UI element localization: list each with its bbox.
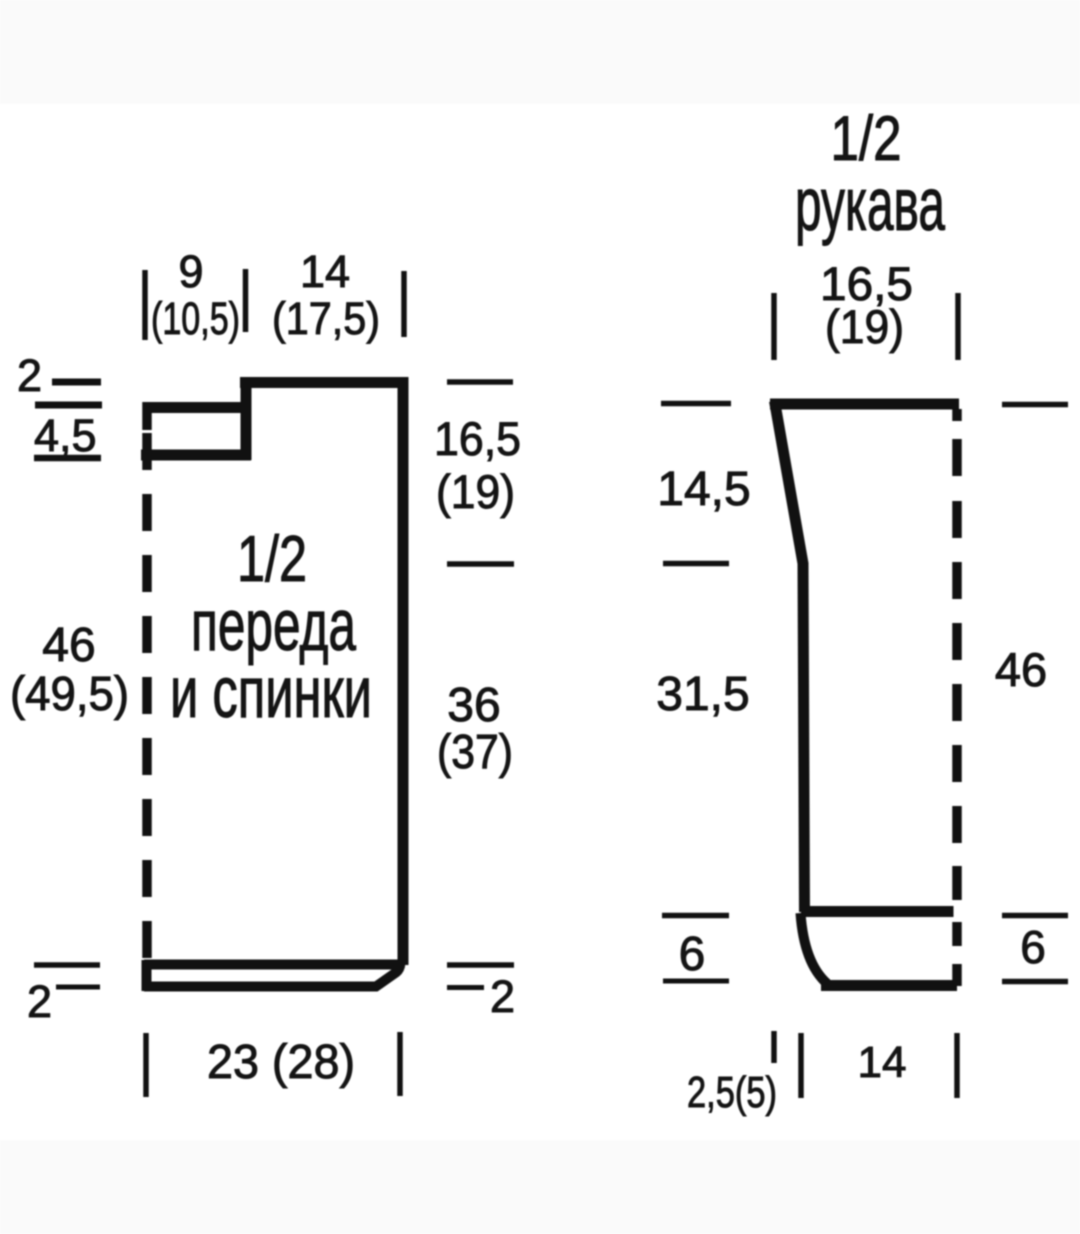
- svg-text:2: 2: [17, 350, 42, 401]
- svg-text:31,5: 31,5: [656, 668, 749, 721]
- svg-text:(37): (37): [437, 726, 513, 779]
- svg-text:и спинки: и спинки: [170, 653, 372, 733]
- svg-text:6: 6: [1020, 921, 1046, 973]
- svg-text:46: 46: [995, 643, 1047, 696]
- svg-text:(19): (19): [825, 300, 904, 353]
- svg-text:(17,5): (17,5): [272, 293, 380, 344]
- svg-text:23 (28): 23 (28): [207, 1036, 355, 1089]
- svg-text:2,5(5): 2,5(5): [687, 1068, 777, 1117]
- svg-text:36: 36: [447, 679, 500, 732]
- svg-text:(49,5): (49,5): [10, 668, 129, 721]
- svg-text:14,5: 14,5: [657, 463, 750, 516]
- svg-text:14: 14: [300, 246, 350, 297]
- svg-text:рукава: рукава: [795, 162, 945, 246]
- svg-text:2: 2: [27, 976, 52, 1027]
- svg-text:(10,5): (10,5): [151, 293, 240, 344]
- svg-text:4,5: 4,5: [34, 410, 97, 461]
- svg-text:1/2: 1/2: [237, 522, 307, 595]
- svg-text:14: 14: [858, 1038, 907, 1087]
- svg-text:9: 9: [178, 246, 203, 297]
- svg-text:46: 46: [42, 619, 95, 672]
- svg-text:2: 2: [490, 971, 515, 1022]
- svg-text:6: 6: [679, 928, 706, 981]
- svg-text:(19): (19): [436, 465, 515, 518]
- svg-text:16,5: 16,5: [434, 412, 521, 465]
